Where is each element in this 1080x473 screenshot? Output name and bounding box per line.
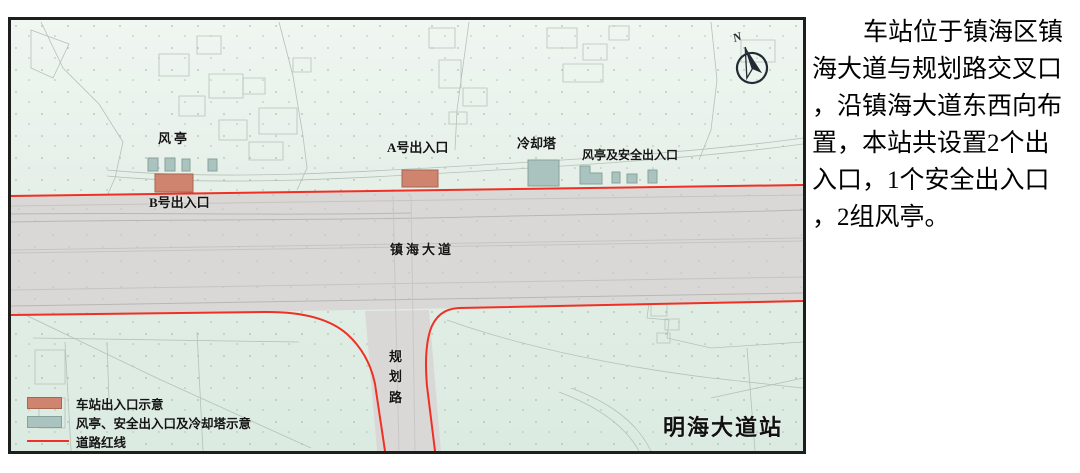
redline-swatch — [27, 440, 69, 442]
legend-redline-label: 道路红线 — [76, 432, 126, 451]
entrance-a-label: A号出入口 — [387, 141, 448, 155]
cooling-tower-structure — [528, 160, 559, 186]
planned-road-char-2: 划 — [389, 370, 402, 384]
description-line: 置，本站共设置2个出 — [812, 125, 1080, 162]
description-line: ，2组风亭。 — [812, 199, 1080, 236]
legend-row-entrance: 车站出入口示意 — [27, 395, 251, 411]
description-line: ，沿镇海大道东西向布 — [812, 88, 1080, 125]
station-description: 车站位于镇海区镇 海大道与规划路交叉口 ，沿镇海大道东西向布 置，本站共设置2个… — [812, 14, 1080, 236]
description-line: 海大道与规划路交叉口 — [812, 51, 1080, 88]
wind-safety-exit-label: 风亭及安全出入口 — [582, 149, 678, 162]
planned-road-char-1: 规 — [389, 350, 402, 364]
planned-road-char-3: 路 — [389, 391, 402, 405]
wind-pavilion-label: 风亭 — [158, 132, 190, 146]
legend-row-redline: 道路红线 — [27, 433, 251, 449]
planned-road-label: 规 划 路 — [389, 350, 402, 405]
legend-entrance-label: 车站出入口示意 — [76, 394, 164, 413]
vent-swatch — [27, 416, 62, 428]
figure-canvas: N 风亭 A号出入口 冷却塔 风亭及安全出入口 B号出入口 镇海大道 规 划 路… — [0, 0, 1080, 473]
cooling-tower-label: 冷却塔 — [517, 137, 556, 151]
zhenhai-avenue-label: 镇海大道 — [390, 243, 454, 257]
entrance-b-label: B号出入口 — [149, 196, 210, 210]
station-site-map: N 风亭 A号出入口 冷却塔 风亭及安全出入口 B号出入口 镇海大道 规 划 路… — [8, 17, 806, 454]
description-line: 入口，1个安全出入口 — [812, 162, 1080, 199]
description-line: 车站位于镇海区镇 — [812, 14, 1080, 51]
station-name-label: 明海大道站 — [663, 416, 783, 440]
legend-vent-label: 风亭、安全出入口及冷却塔示意 — [76, 413, 251, 432]
map-legend: 车站出入口示意 风亭、安全出入口及冷却塔示意 道路红线 — [27, 395, 251, 449]
legend-row-vent: 风亭、安全出入口及冷却塔示意 — [27, 414, 251, 430]
entrance-a-structure — [402, 170, 438, 187]
entrance-b-structure — [155, 174, 193, 192]
site-map-art — [11, 20, 803, 451]
entrance-swatch — [27, 397, 62, 409]
